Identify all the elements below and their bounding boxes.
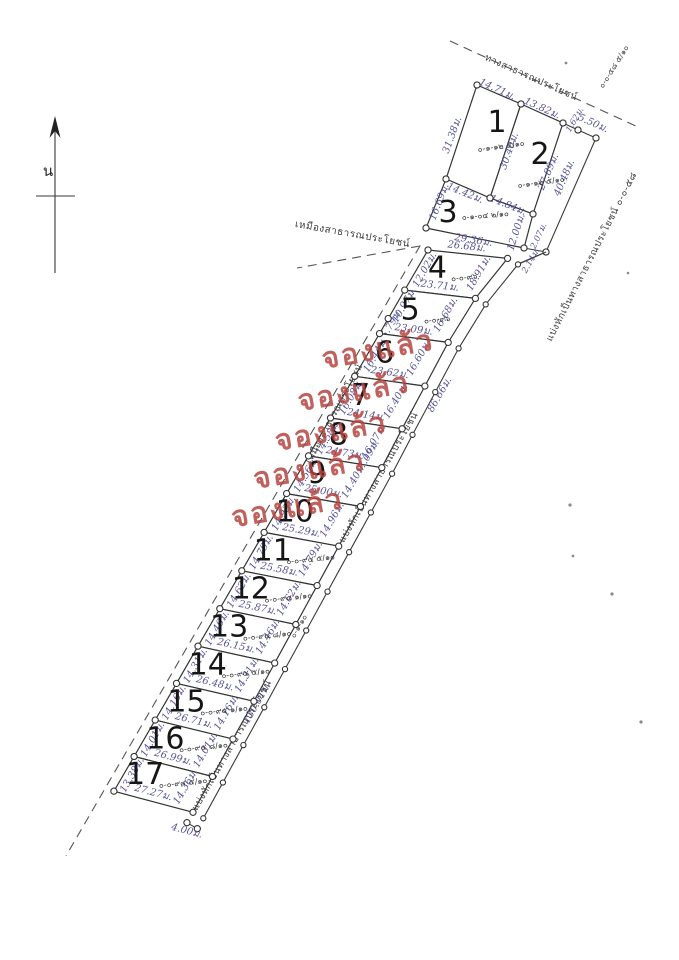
survey-node: [368, 510, 373, 515]
canal-upper: เหมืองสาธารณประโยชน์: [294, 217, 420, 268]
survey-node: [433, 390, 438, 395]
survey-node: [190, 809, 196, 815]
survey-node: [399, 426, 405, 432]
survey-node: [209, 773, 215, 779]
right-road-upper-area: ๐-๐-๕๘ ๕/๑๐: [597, 43, 631, 89]
survey-node: [410, 432, 415, 437]
survey-plan-page: น ทางสาธารณประโยชน์ เหมืองสาธารณประโยชน์…: [0, 0, 679, 960]
survey-node: [195, 643, 201, 649]
survey-node: [152, 717, 158, 723]
survey-node: [293, 621, 299, 627]
survey-node: [131, 753, 137, 759]
survey-node: [347, 550, 352, 555]
survey-node: [230, 736, 236, 742]
survey-node: [239, 568, 245, 574]
survey-node: [325, 589, 330, 594]
survey-node: [385, 316, 391, 322]
survey-node: [425, 247, 431, 253]
survey-node: [505, 255, 511, 261]
survey-node: [173, 680, 179, 686]
survey-node: [251, 698, 257, 704]
plot-4-number: 4: [428, 250, 447, 285]
survey-node: [220, 780, 225, 785]
survey-node: [357, 503, 363, 509]
survey-node: [336, 543, 342, 549]
survey-node: [402, 287, 408, 293]
survey-node: [314, 583, 320, 589]
survey-node: [111, 788, 117, 794]
survey-node: [304, 628, 309, 633]
survey-node: [272, 660, 278, 666]
plots-4-17-strip: 26.68ม.23.71ม.12.02ม.18.91ม.4๐-๐-๙๖23.09…: [66, 239, 546, 856]
north-label: น: [43, 162, 53, 180]
survey-node: [217, 606, 223, 612]
survey-node: [390, 471, 395, 476]
survey-node: [456, 346, 461, 351]
survey-node: [483, 302, 488, 307]
survey-plan-drawing: น ทางสาธารณประโยชน์ เหมืองสาธารณประโยชน์…: [0, 0, 679, 960]
survey-node: [261, 529, 267, 535]
north-arrow: น: [36, 116, 75, 273]
survey-node: [515, 262, 520, 267]
survey-node: [201, 816, 206, 821]
dim-p3-jog: 2.07ม.: [528, 222, 549, 252]
survey-node: [262, 705, 267, 710]
plot-1-number: 1: [487, 105, 506, 140]
paper-specks: [565, 62, 643, 724]
plot-3-number: 3: [438, 195, 457, 230]
survey-node: [282, 667, 287, 672]
survey-node: [422, 383, 428, 389]
plot-5-number: 5: [401, 293, 420, 328]
dim-road-end-width: 4.00ม.: [169, 822, 204, 841]
canal-upper-label: เหมืองสาธารณประโยชน์: [294, 217, 411, 250]
plot-2-number: 2: [530, 137, 549, 172]
survey-node: [445, 339, 451, 345]
survey-node: [379, 465, 385, 471]
survey-node: [241, 743, 246, 748]
right-road-mid-length: 86.66ม.: [426, 375, 455, 414]
survey-node: [472, 295, 478, 301]
